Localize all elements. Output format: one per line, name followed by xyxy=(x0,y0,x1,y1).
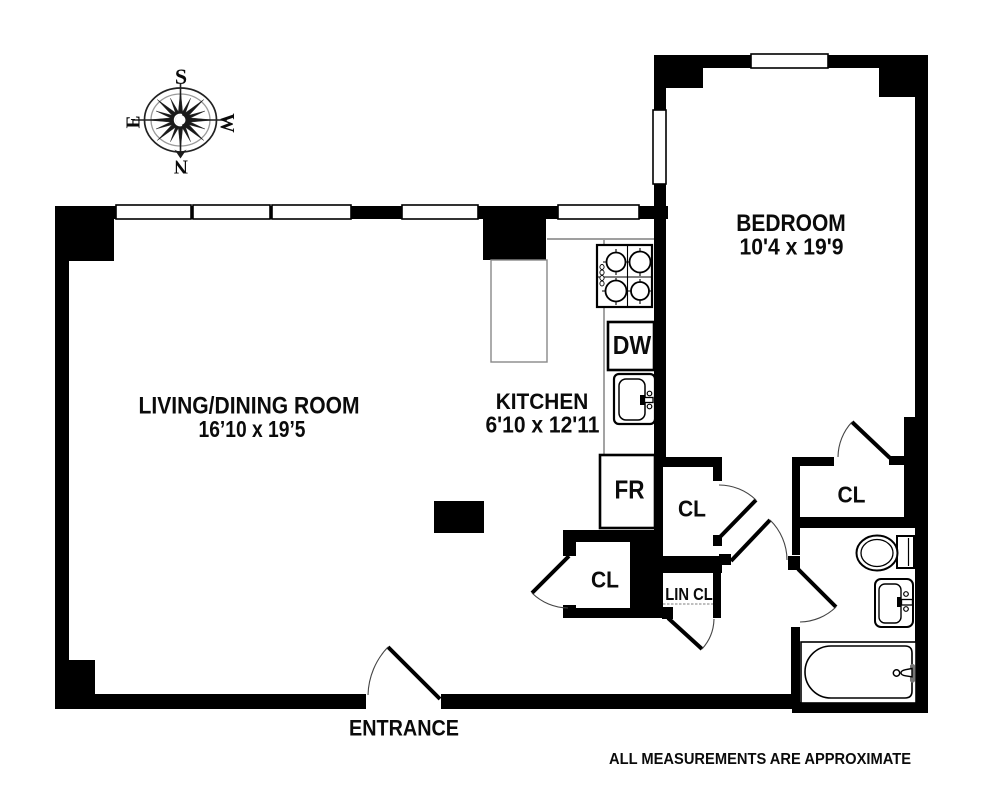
svg-text:16’10 x 19’5: 16’10 x 19’5 xyxy=(199,416,306,442)
svg-text:LIN CL: LIN CL xyxy=(665,584,713,604)
svg-text:ALL MEASUREMENTS ARE APPROXIMA: ALL MEASUREMENTS ARE APPROXIMATE xyxy=(609,751,911,768)
svg-text:KITCHEN: KITCHEN xyxy=(496,389,589,414)
svg-text:W: W xyxy=(216,113,237,133)
svg-text:N: N xyxy=(174,156,188,177)
svg-text:S: S xyxy=(175,64,187,89)
svg-text:E: E xyxy=(124,115,145,128)
svg-text:CL: CL xyxy=(591,567,619,593)
svg-text:CL: CL xyxy=(678,496,706,522)
svg-text:DW: DW xyxy=(613,330,652,360)
svg-text:6'10 x 12'11: 6'10 x 12'11 xyxy=(486,412,600,438)
svg-text:10'4 x 19'9: 10'4 x 19'9 xyxy=(740,234,844,260)
svg-text:ENTRANCE: ENTRANCE xyxy=(349,716,459,741)
svg-text:CL: CL xyxy=(838,482,866,508)
svg-text:FR: FR xyxy=(615,475,645,505)
